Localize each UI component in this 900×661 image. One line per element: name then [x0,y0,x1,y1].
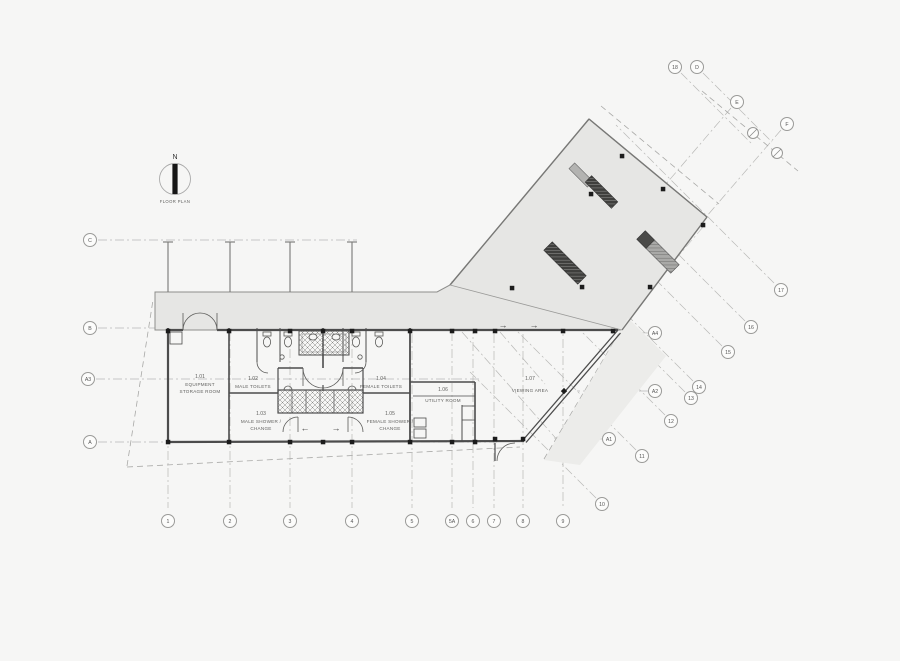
wc-fixture [352,332,360,347]
svg-text:3: 3 [289,519,292,525]
svg-text:A4: A4 [652,331,658,337]
floor-plan-caption: FLOOR PLAN [160,199,191,204]
grid-bubble-4: 4 [346,515,359,528]
room-label-utility: 1.06 UTILITY ROOM [425,387,461,403]
walls [168,328,621,461]
grid-bubble-B: B [84,322,97,335]
svg-text:FEMALE SHOWER /: FEMALE SHOWER / [367,419,414,424]
svg-text:12: 12 [668,419,674,425]
canopy [155,119,707,465]
basin [309,334,317,340]
grid-bubble-A3: A3 [82,373,95,386]
grid-bubble-2: 2 [224,515,237,528]
grid-bubble-18: 18 [669,61,682,74]
svg-text:9: 9 [562,519,565,525]
room-labels: 1.01 EQUIPMENT STORAGE ROOM 1.02 MALE TO… [180,374,549,431]
svg-text:1.01: 1.01 [195,374,205,380]
svg-text:E: E [735,100,739,106]
svg-text:5: 5 [411,519,414,525]
grid-bubble-E: E [731,96,744,109]
wc-fixture [284,332,292,347]
svg-text:A: A [88,440,92,446]
room-label-female-toilets: 1.04 FEMALE TOILETS [360,376,402,389]
grid-bubble-C: C [84,234,97,247]
svg-text:4: 4 [351,519,354,525]
grid-bubble-A: A [84,436,97,449]
room-label-equipment-storage: 1.01 EQUIPMENT STORAGE ROOM [180,374,221,394]
svg-text:1.06: 1.06 [438,387,448,393]
svg-text:A2: A2 [652,389,658,395]
grid-bubble-3: 3 [284,515,297,528]
floor-drain [358,355,362,359]
svg-text:1: 1 [167,519,170,525]
svg-text:A1: A1 [606,437,612,443]
svg-text:EQUIPMENT: EQUIPMENT [185,382,215,387]
svg-text:CHANGE: CHANGE [250,426,271,431]
arrow-right: → [530,320,539,330]
grid-bubble-15: 15 [722,346,735,359]
grid-bubble-14: 14 [693,381,706,394]
vanity-unit [299,331,349,355]
svg-text:B: B [88,326,92,332]
room-label-male-toilets: 1.02 MALE TOILETS [235,376,271,389]
svg-text:7: 7 [493,519,496,525]
svg-text:18: 18 [672,65,678,71]
wc-fixture [263,332,271,347]
grid-bubble-16: 16 [745,321,758,334]
grid-bubble-1: 1 [162,515,175,528]
floor-plan-sheet: N FLOOR PLAN 1.01 EQUIPMENT STORAGE ROOM… [0,0,900,661]
north-label: N [172,154,177,161]
svg-text:D: D [695,65,699,71]
svg-text:13: 13 [688,396,694,402]
arrow-right: → [499,320,508,330]
roof-posts [163,242,357,292]
svg-text:11: 11 [639,454,644,460]
svg-text:16: 16 [748,325,754,331]
grid-bubble-6: 6 [467,515,480,528]
svg-text:2: 2 [229,519,232,525]
north-arrow: N FLOOR PLAN [160,154,191,204]
arrow-left: ← [301,423,310,433]
basin [332,334,340,340]
grid-bubble-10: 10 [596,498,609,511]
room-label-viewing: 1.07 VIEWING AREA [512,376,549,393]
grid-bubble-13: 13 [685,392,698,405]
shower-block [278,390,363,413]
grid-bubble-12: 12 [665,415,678,428]
grid-bubble-A1: A1 [603,433,616,446]
svg-text:5A: 5A [449,519,456,525]
svg-text:FEMALE TOILETS: FEMALE TOILETS [360,384,402,389]
grid-bubble-17: 17 [775,284,788,297]
svg-text:1.07: 1.07 [525,376,535,382]
floor-plan-svg: N FLOOR PLAN 1.01 EQUIPMENT STORAGE ROOM… [0,0,900,661]
svg-text:6: 6 [472,519,475,525]
svg-text:1.04: 1.04 [376,376,386,382]
room-label-female-shower: 1.05 FEMALE SHOWER / CHANGE [367,411,414,431]
svg-text:CHANGE: CHANGE [379,426,400,431]
svg-text:UTILITY ROOM: UTILITY ROOM [425,398,461,403]
grid-bubble-A2: A2 [649,385,662,398]
grid-bubble-F: F [781,118,794,131]
shower-head [284,386,292,390]
svg-text:F: F [785,122,788,128]
svg-text:1.02: 1.02 [248,376,258,382]
svg-text:8: 8 [522,519,525,525]
grid-bubble-9: 9 [557,515,570,528]
svg-text:A3: A3 [85,377,91,383]
grid-bubble-5: 5 [406,515,419,528]
svg-text:10: 10 [599,502,605,508]
svg-text:1.03: 1.03 [256,411,266,417]
survey-marker [748,128,759,139]
svg-text:1.05: 1.05 [385,411,395,417]
svg-text:VIEWING AREA: VIEWING AREA [512,388,549,393]
grid-bubble-A4: A4 [649,327,662,340]
svg-text:MALE TOILETS: MALE TOILETS [235,384,271,389]
grid-bubble-7: 7 [488,515,501,528]
svg-text:14: 14 [696,385,702,391]
svg-text:15: 15 [725,350,731,356]
grid-bubble-D: D [691,61,704,74]
grid-bubble-5A: 5A [446,515,459,528]
svg-text:STORAGE ROOM: STORAGE ROOM [180,389,221,394]
north-needle [172,164,177,194]
svg-text:17: 17 [778,288,784,294]
grid-bubble-8: 8 [517,515,530,528]
svg-text:C: C [88,238,92,244]
wc-fixture [375,332,383,347]
svg-text:MALE SHOWER /: MALE SHOWER / [241,419,282,424]
grid-bubble-11: 11 [636,450,649,463]
arrow-right: → [332,423,341,433]
survey-marker [772,148,783,159]
room-label-male-shower: 1.03 MALE SHOWER / CHANGE [241,411,282,431]
